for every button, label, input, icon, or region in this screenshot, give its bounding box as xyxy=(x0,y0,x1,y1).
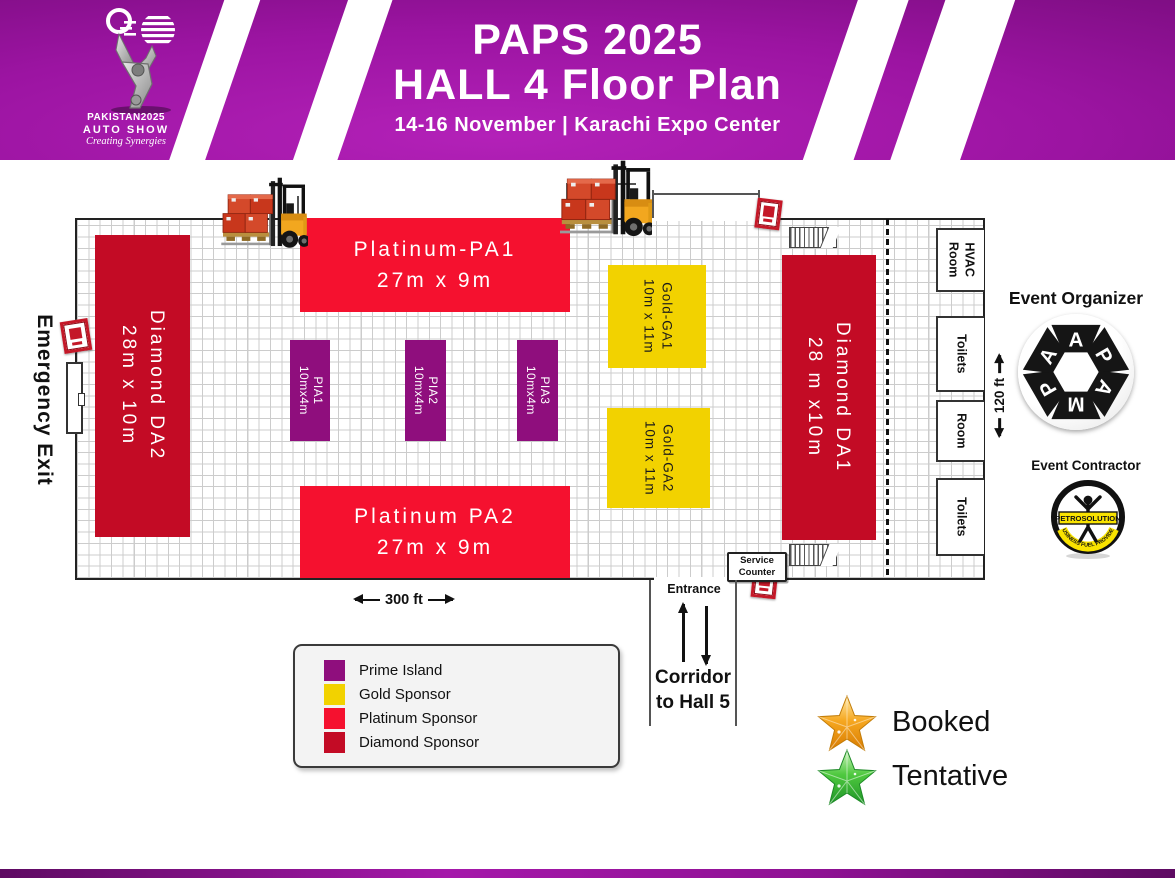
gold-sponsor-swatch xyxy=(324,684,345,705)
service-counter-label: Counter xyxy=(739,567,775,579)
event-title: PAPS 2025 xyxy=(0,18,1175,63)
booth-gold-ga1[interactable]: Gold-GA1 10m x 11m xyxy=(608,265,706,368)
entrance-label: Entrance xyxy=(652,582,736,596)
page: PAKISTAN2025 AUTO SHOW Creating Synergie… xyxy=(0,0,1175,878)
booth-size: 27m x 9m xyxy=(377,532,493,564)
corridor-line2: to Hall 5 xyxy=(656,692,730,713)
dock-bracket-tick xyxy=(652,190,654,218)
fire-point-icon-top xyxy=(754,198,782,231)
legend-item-gold-sponsor: Gold Sponsor xyxy=(324,684,618,705)
emergency-exit-label: Emergency Exit xyxy=(32,314,56,486)
booth-name: Diamond DA1 xyxy=(833,322,854,473)
booked-star-icon xyxy=(814,694,880,754)
status-booked-label: Booked xyxy=(892,706,990,739)
legend: Prime Island Gold Sponsor Platinum Spons… xyxy=(293,644,620,768)
paapam-organizer-logo: A P A M P A xyxy=(1018,314,1134,430)
emergency-exit-sign-icon xyxy=(60,318,93,354)
legend-label: Diamond Sponsor xyxy=(359,734,479,751)
room-label: Room xyxy=(947,242,961,277)
booth-name: PIA2 xyxy=(426,376,440,404)
emergency-exit-text-wrap: Emergency Exit xyxy=(22,300,66,500)
legend-label: Platinum Sponsor xyxy=(359,710,477,727)
booth-size: 10m x 11m xyxy=(641,279,656,354)
booth-name: Diamond DA2 xyxy=(146,310,167,461)
organizer-letter: M xyxy=(1067,393,1084,416)
booth-pia3[interactable]: PIA3 10mx4m xyxy=(517,340,558,441)
page-title: HALL 4 Floor Plan xyxy=(0,63,1175,108)
top-wall-opening xyxy=(652,216,758,221)
booth-name: PIA3 xyxy=(538,376,552,404)
booth-diamond-da1[interactable]: Diamond DA1 28 m x10m xyxy=(782,255,876,540)
width-value: 300 ft xyxy=(385,592,423,608)
booth-platinum-pa2[interactable]: Platinum PA2 27m x 9m xyxy=(300,486,570,578)
booth-name: Platinum-PA1 xyxy=(354,234,517,266)
booth-size: 28 m x10m xyxy=(805,337,826,458)
booth-size: 27m x 9m xyxy=(377,265,493,297)
prime-island-swatch xyxy=(324,660,345,681)
booth-size: 10mx4m xyxy=(524,366,538,415)
booth-size: 10m x 11m xyxy=(643,421,658,496)
event-date-venue: 14-16 November | Karachi Expo Center xyxy=(0,114,1175,137)
booth-name: PIA1 xyxy=(310,376,324,404)
booth-size: 10mx4m xyxy=(412,366,426,415)
room-hvac: HVAC Room xyxy=(936,228,984,292)
room-label: Toilets xyxy=(955,497,969,536)
organizer-letter: A xyxy=(1069,328,1084,351)
room-label: HVAC xyxy=(963,243,977,278)
hall-width-dimension: 300 ft xyxy=(355,592,453,608)
legend-item-prime-island: Prime Island xyxy=(324,660,618,681)
event-contractor-title: Event Contractor xyxy=(1010,458,1162,473)
booth-gold-ga2[interactable]: Gold-GA2 10m x 11m xyxy=(607,408,710,508)
height-value: 120 ft xyxy=(993,377,1008,412)
title-block: PAPS 2025 HALL 4 Floor Plan 14-16 Novemb… xyxy=(0,18,1175,137)
booth-size: 10mx4m xyxy=(296,366,310,415)
legend-label: Gold Sponsor xyxy=(359,686,451,703)
tentative-star-icon xyxy=(814,748,880,808)
dock-bracket xyxy=(652,193,760,195)
stairs-bottom xyxy=(789,544,837,566)
stairs-top xyxy=(789,227,837,248)
booth-pia1[interactable]: PIA1 10mx4m xyxy=(290,340,330,441)
service-counter-label: Service xyxy=(740,555,774,567)
diamond-sponsor-swatch xyxy=(324,732,345,753)
legend-item-platinum-sponsor: Platinum Sponsor xyxy=(324,708,618,729)
booth-pia2[interactable]: PIA2 10mx4m xyxy=(405,340,446,441)
corridor-line1: Corridor xyxy=(655,667,731,688)
header-banner: PAKISTAN2025 AUTO SHOW Creating Synergie… xyxy=(0,0,1175,160)
logo-tagline: Creating Synergies xyxy=(66,136,186,148)
booth-name: Gold-GA1 xyxy=(659,282,674,350)
service-counter: Service Counter xyxy=(727,552,787,582)
arrow-up-icon xyxy=(682,604,685,662)
booth-platinum-pa1[interactable]: Platinum-PA1 27m x 9m xyxy=(300,218,570,312)
legend-label: Prime Island xyxy=(359,662,442,679)
booth-name: Platinum PA2 xyxy=(354,501,516,533)
legend-item-diamond-sponsor: Diamond Sponsor xyxy=(324,732,618,753)
partition-dashed-line xyxy=(886,219,889,579)
platinum-sponsor-swatch xyxy=(324,708,345,729)
arrow-up-icon xyxy=(999,354,1002,372)
forklift-icon-left xyxy=(220,176,308,258)
booth-size: 28m x 10m xyxy=(119,326,140,447)
booth-diamond-da2[interactable]: Diamond DA2 28m x 10m xyxy=(95,235,190,537)
arrow-left-icon xyxy=(355,599,380,602)
forklift-icon-right xyxy=(560,152,652,254)
footer-bar xyxy=(0,869,1175,878)
arrow-down-icon xyxy=(705,606,708,664)
booth-name: Gold-GA2 xyxy=(661,424,676,492)
exit-door xyxy=(66,362,83,434)
arrow-right-icon xyxy=(428,599,453,602)
arrow-down-icon xyxy=(999,418,1002,436)
petrosolution-contractor-logo: PETROSOLUTION BUSINESS FUEL PROVIDER xyxy=(1050,477,1126,561)
status-tentative-label: Tentative xyxy=(892,760,1008,793)
room-toilets-2: Toilets xyxy=(936,478,984,556)
event-organizer-title: Event Organizer xyxy=(1000,288,1152,309)
contractor-name: PETROSOLUTION xyxy=(1055,514,1120,523)
corridor-label: Corridor to Hall 5 xyxy=(637,666,749,715)
